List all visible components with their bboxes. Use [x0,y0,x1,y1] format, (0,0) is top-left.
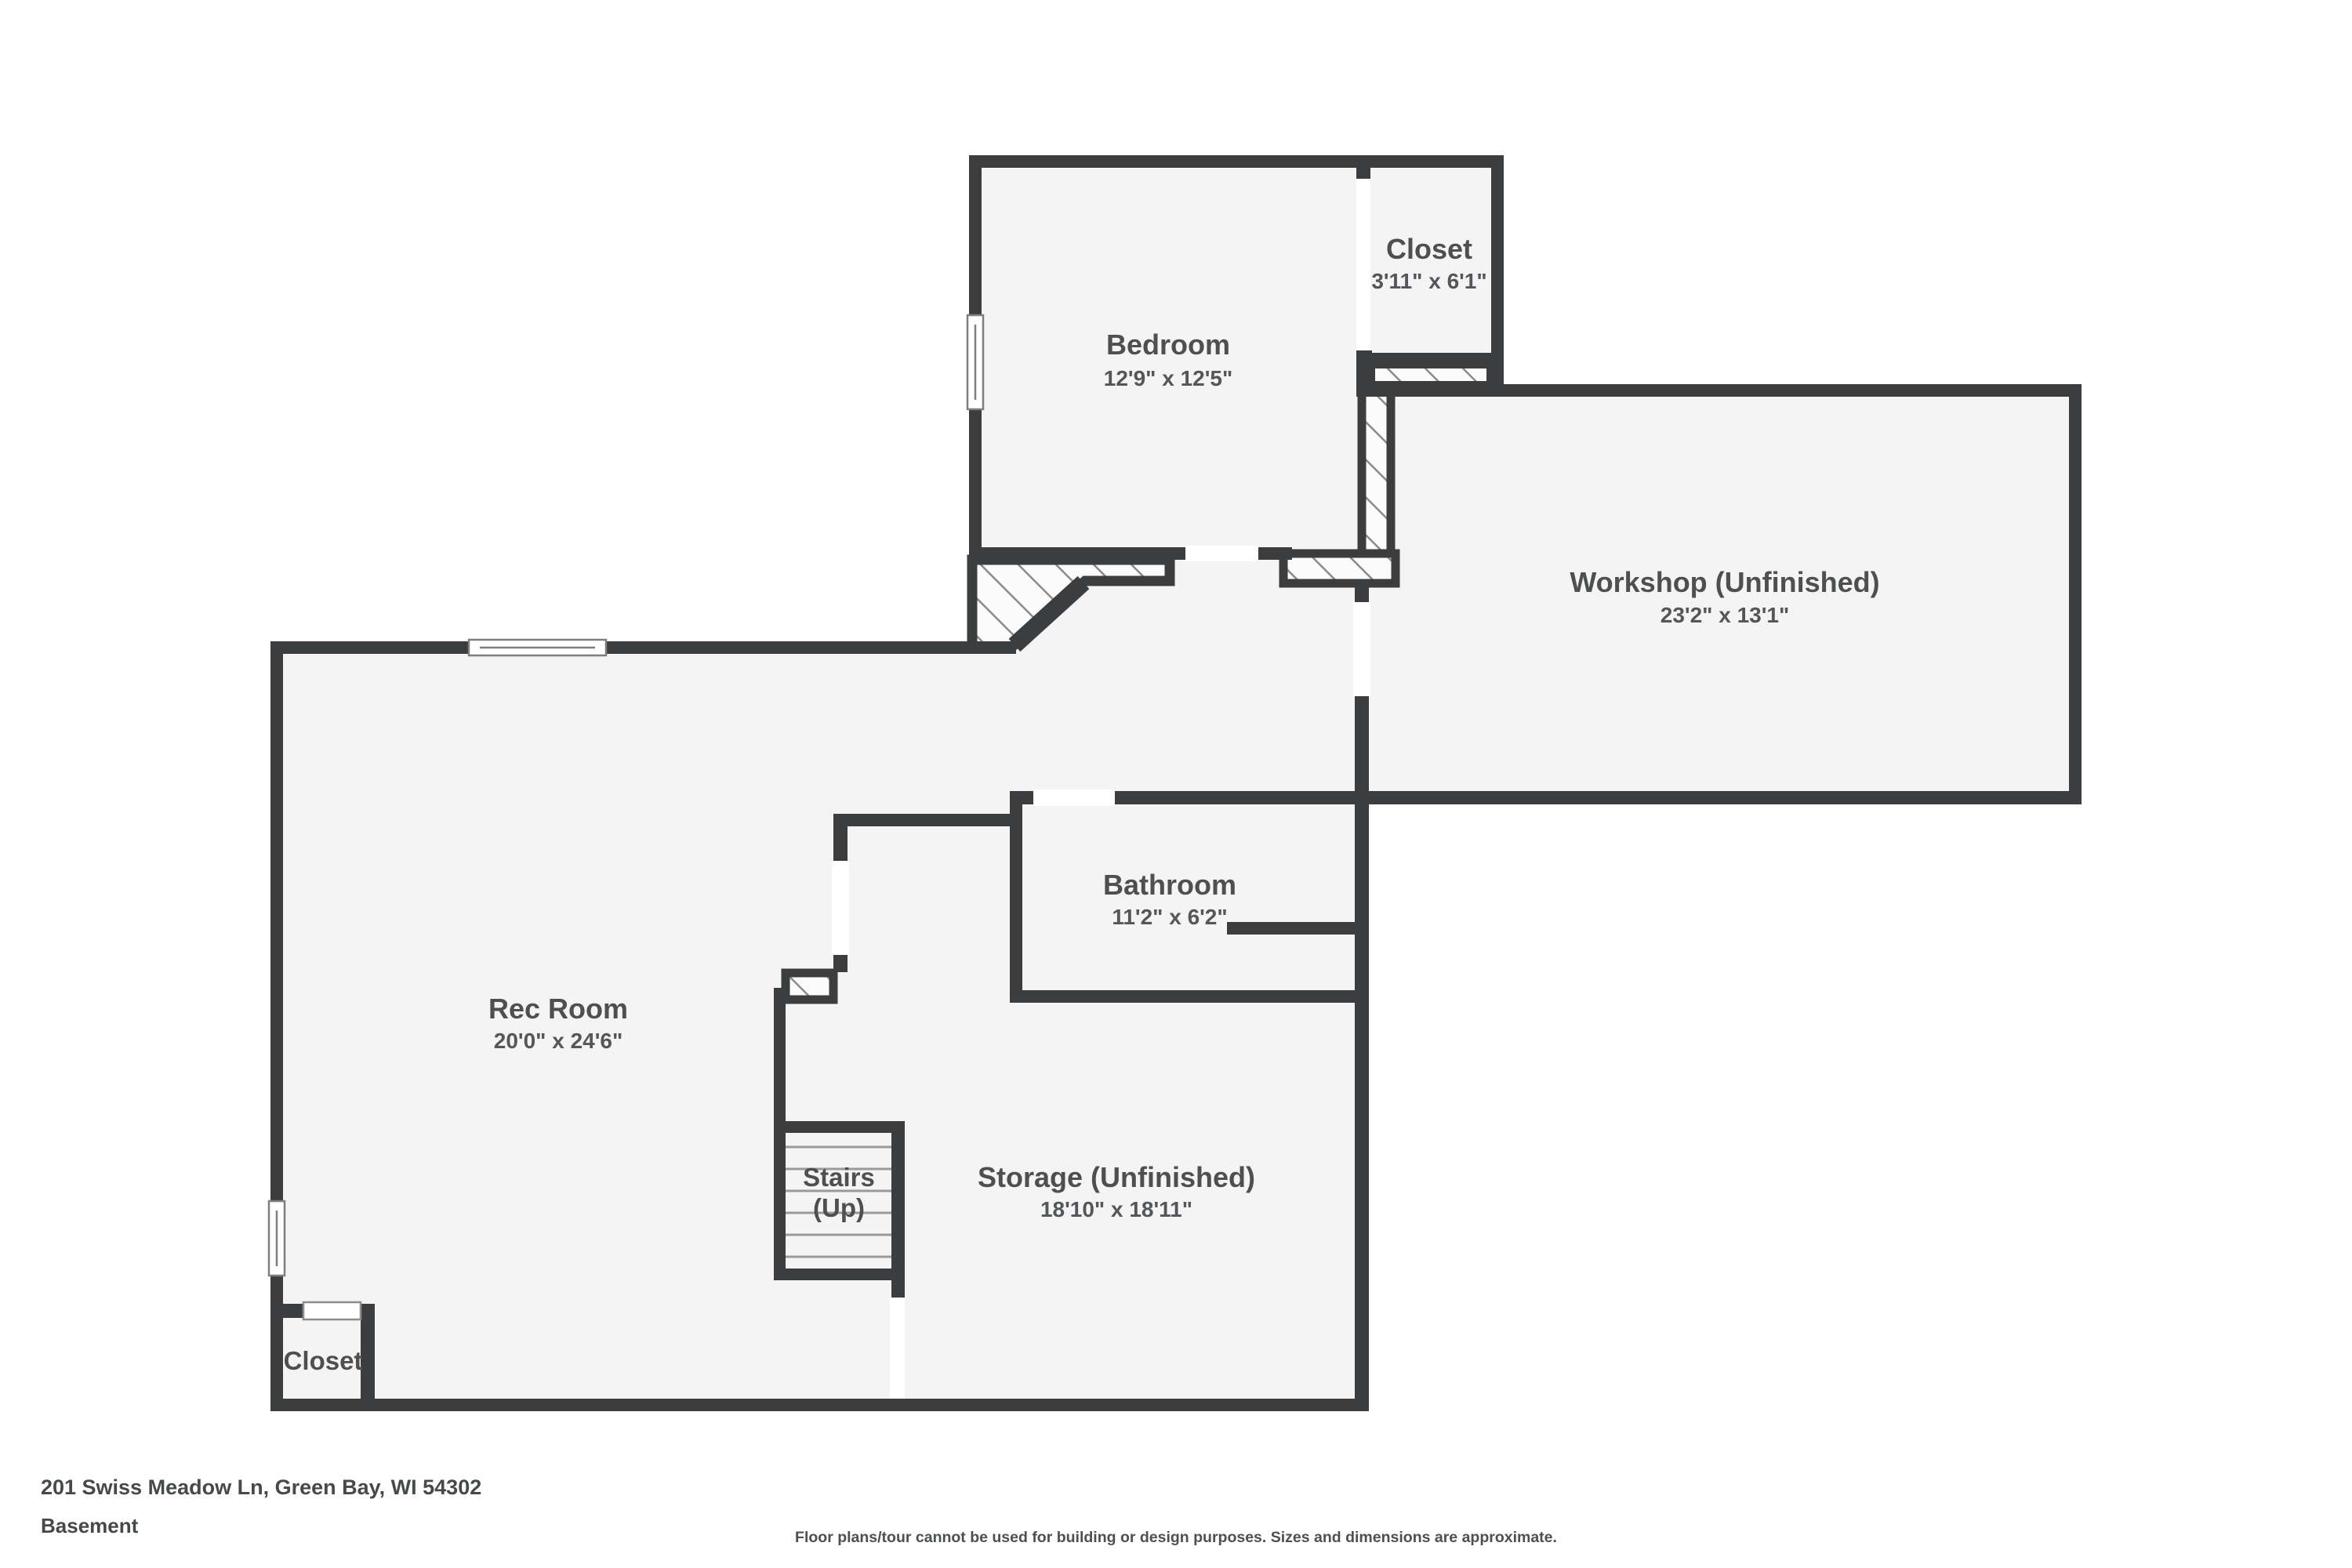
room-dims-storage: 18'10" x 18'11" [1040,1197,1192,1221]
wall-segment [2069,384,2082,804]
floorplan-page: Bedroom 12'9" x 12'5" Closet 3'11" x 6'1… [0,0,2352,1568]
room-dims-bathroom: 11'2" x 6'2" [1112,905,1227,929]
room-dims-rec-room: 20'0" x 24'6" [494,1029,622,1053]
address-text: 201 Swiss Meadow Ln, Green Bay, WI 54302 [41,1475,481,1500]
hatched-wall-hall-block [1283,554,1396,583]
wall-segment [1355,696,1369,1411]
door-opening-vestibule [832,861,849,955]
wall-segment [774,1121,786,1280]
wall-segment [361,1304,375,1411]
room-label-rec-room: Rec Room [488,993,628,1025]
room-label-closet-top: Closet [1386,233,1472,265]
wall-segment [270,1399,1369,1411]
wall-segment [833,814,848,861]
door-opening-bedroom [1185,546,1258,561]
wall-segment [774,988,786,1125]
door-opening-closet-top [1356,179,1370,350]
room-label-stairs-up: (Up) [813,1193,865,1222]
wall-segment [1355,580,1369,602]
door-opening-bathroom [1033,789,1115,806]
wall-segment [833,955,848,972]
wall-segment [1356,167,1370,179]
wall-segment [270,641,283,1411]
room-recroom-storage-floor [270,641,1369,1411]
room-label-bedroom: Bedroom [1106,328,1230,361]
wall-segment [1227,922,1355,935]
room-dims-workshop: 23'2" x 13'1" [1661,603,1789,627]
wall-segment [1356,384,2082,397]
door-opening-below-stairs [890,1298,905,1399]
wall-segment [1010,990,1369,1003]
wall-segment [1258,547,1292,560]
room-label-closet-bottom: Closet [284,1346,363,1375]
room-label-storage: Storage (Unfinished) [978,1161,1255,1193]
hatched-wall-workshop-left [1362,392,1391,560]
hatched-wall-stub [786,973,833,1000]
wall-segment [1010,791,2082,804]
wall-segment [969,155,1504,168]
wall-segment [270,641,1016,654]
room-label-stairs: Stairs [803,1163,875,1192]
door-opening-workshop [1353,602,1370,696]
wall-segment [835,814,1022,826]
wall-segment [1356,353,1504,365]
disclaimer-text: Floor plans/tour cannot be used for buil… [0,1529,2352,1547]
wall-segment [1010,791,1022,1003]
hatched-wall-below-closet [1370,364,1491,386]
room-label-bathroom: Bathroom [1103,869,1236,901]
wall-segment [969,547,1185,560]
room-dims-closet-top: 3'11" x 6'1" [1371,269,1486,293]
door-opening-closet-bottom [303,1302,361,1319]
floorplan-canvas: Bedroom 12'9" x 12'5" Closet 3'11" x 6'1… [0,0,2352,1568]
room-label-workshop: Workshop (Unfinished) [1570,566,1879,598]
wall-segment [774,1121,903,1133]
wall-segment [774,1269,903,1280]
room-dims-bedroom: 12'9" x 12'5" [1104,366,1232,390]
